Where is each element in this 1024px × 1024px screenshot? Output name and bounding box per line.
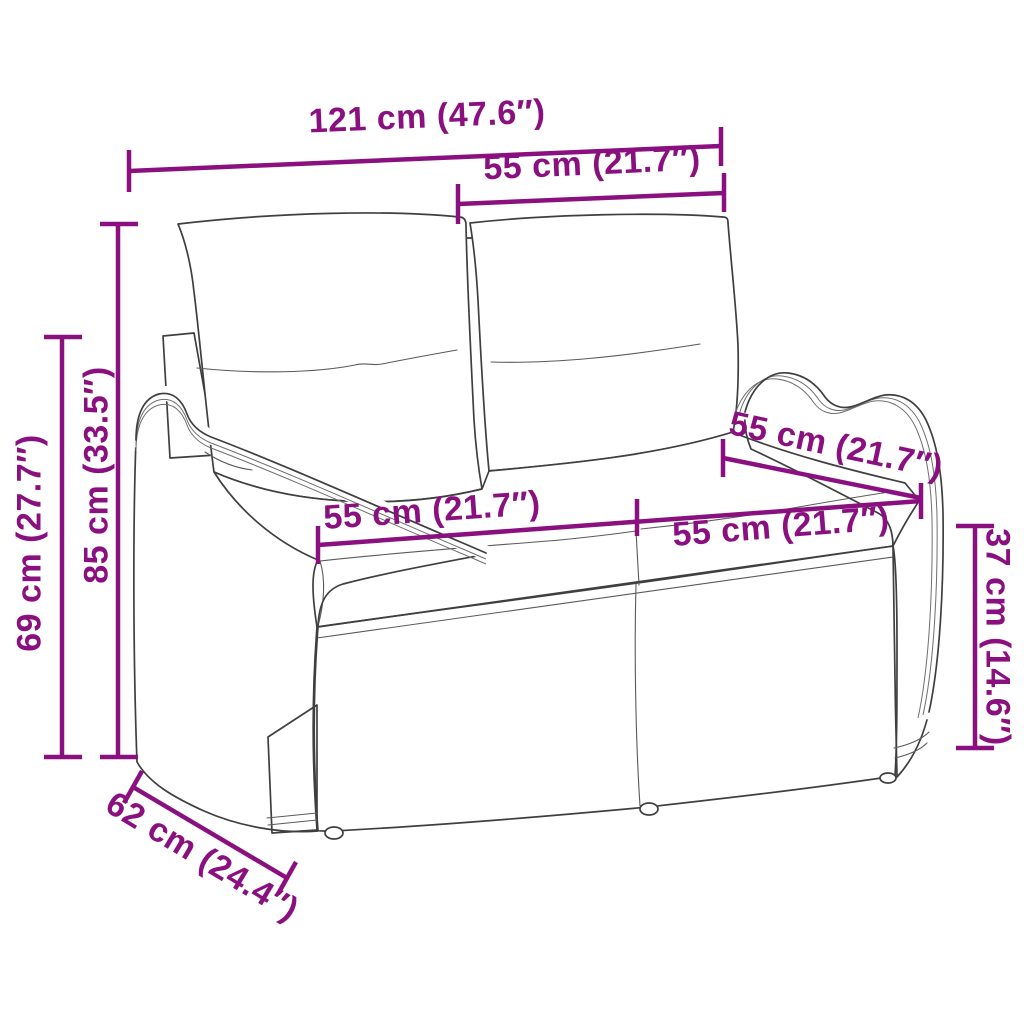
dim-label-arm-height: 69 cm (27.7″)	[11, 434, 50, 651]
bench-foot-right	[880, 773, 896, 783]
bench-foot-middle	[640, 803, 658, 815]
bench-foot-left	[325, 827, 343, 839]
dim-label-seat-height: 37 cm (14.6″)	[978, 528, 1017, 745]
dim-label-overall-height: 85 cm (33.5″)	[78, 366, 117, 583]
back-cushion-right	[470, 214, 752, 471]
seat-module-seam	[635, 584, 640, 806]
dim-line-arm-height	[44, 337, 82, 757]
product-dimension-diagram: 121 cm (47.6″) 55 cm (21.7″) 85 cm (33.5…	[0, 0, 1024, 1024]
back-cushion-left	[178, 213, 482, 502]
